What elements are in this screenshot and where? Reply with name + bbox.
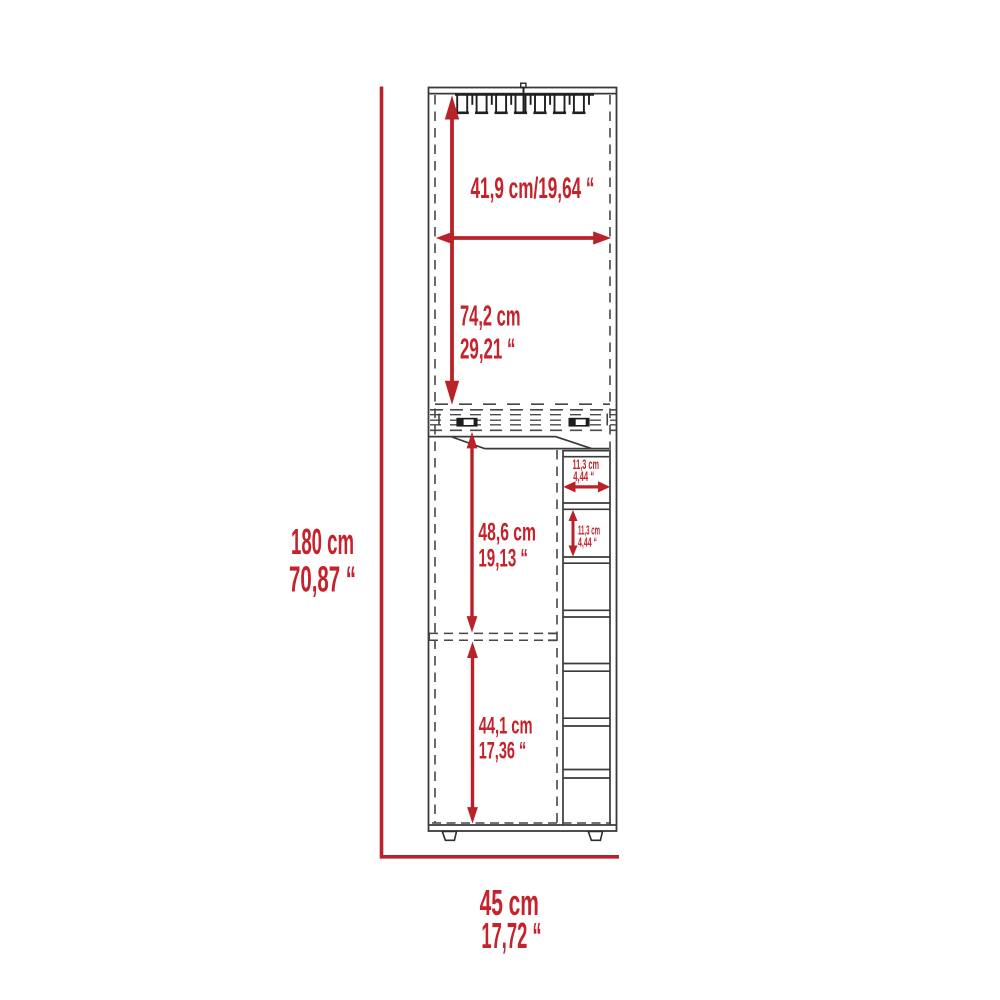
svg-text:74,2 cm: 74,2 cm bbox=[460, 301, 521, 333]
svg-text:4,44 “: 4,44 “ bbox=[578, 535, 597, 550]
svg-text:19,13 “: 19,13 “ bbox=[478, 545, 528, 573]
svg-text:44,1 cm: 44,1 cm bbox=[479, 713, 533, 740]
svg-text:48,6 cm: 48,6 cm bbox=[478, 519, 536, 547]
svg-text:17,36 “: 17,36 “ bbox=[479, 738, 527, 765]
svg-text:41,9 cm/19,64 “: 41,9 cm/19,64 “ bbox=[471, 172, 595, 205]
svg-text:17,72 “: 17,72 “ bbox=[481, 915, 541, 956]
svg-text:4,44 “: 4,44 “ bbox=[573, 469, 594, 484]
svg-text:180 cm: 180 cm bbox=[291, 521, 354, 562]
svg-text:70,87 “: 70,87 “ bbox=[289, 559, 356, 600]
svg-text:29,21 “: 29,21 “ bbox=[460, 334, 516, 366]
